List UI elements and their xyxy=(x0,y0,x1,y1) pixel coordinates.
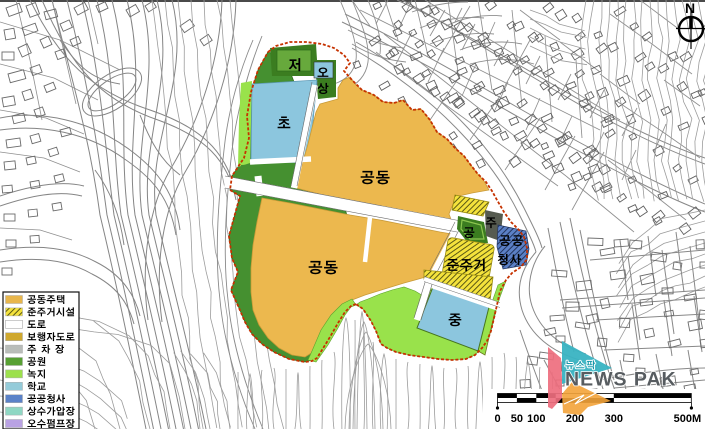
svg-text:N: N xyxy=(685,0,695,16)
svg-text:0: 0 xyxy=(494,413,500,425)
svg-text:50: 50 xyxy=(511,413,523,425)
svg-text:NEWS PAK: NEWS PAK xyxy=(565,369,677,391)
svg-text:200: 200 xyxy=(566,413,584,425)
svg-text:100: 100 xyxy=(527,413,545,425)
svg-text:300: 300 xyxy=(605,413,623,425)
svg-text:500M: 500M xyxy=(674,413,702,425)
